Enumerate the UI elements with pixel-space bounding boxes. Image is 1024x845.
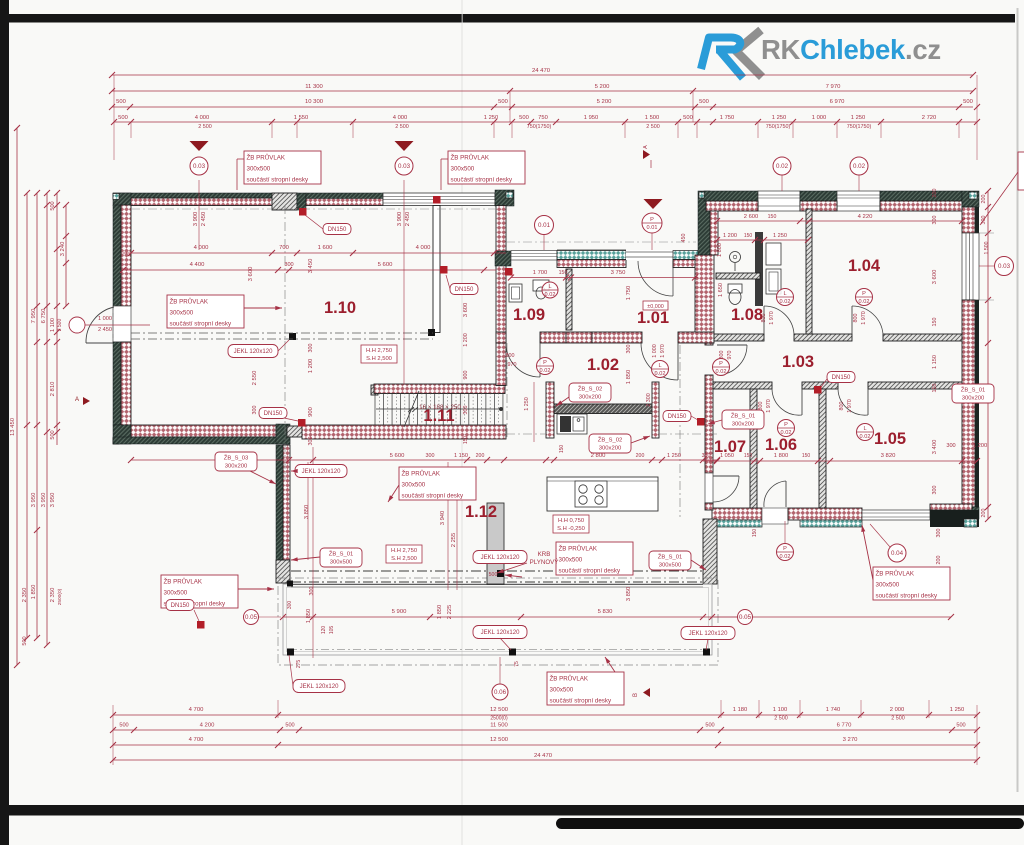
svg-text:ŽB_S_02: ŽB_S_02 xyxy=(598,436,623,444)
svg-text:ŽB PRŮVLAK: ŽB PRŮVLAK xyxy=(170,298,209,306)
svg-text:500: 500 xyxy=(498,99,508,105)
svg-text:2 500: 2 500 xyxy=(774,716,788,722)
svg-text:L: L xyxy=(548,284,551,290)
svg-text:±0,000: ±0,000 xyxy=(647,304,663,310)
svg-text:750(1750): 750(1750) xyxy=(847,124,872,130)
svg-text:ŽB PRŮVLAK: ŽB PRŮVLAK xyxy=(247,154,286,162)
svg-text:S.H 2,500: S.H 2,500 xyxy=(366,356,392,362)
svg-text:A: A xyxy=(75,397,79,403)
svg-text:4 000: 4 000 xyxy=(416,245,431,251)
svg-text:2 300: 2 300 xyxy=(646,393,652,407)
svg-text:L: L xyxy=(658,363,661,369)
svg-text:75: 75 xyxy=(514,661,520,667)
svg-text:3 600: 3 600 xyxy=(248,266,254,281)
svg-text:1 600: 1 600 xyxy=(318,245,333,251)
svg-text:700: 700 xyxy=(279,245,289,251)
svg-text:500: 500 xyxy=(22,636,28,645)
svg-text:0.02: 0.02 xyxy=(860,434,871,440)
svg-text:1 250: 1 250 xyxy=(524,397,530,411)
svg-text:300: 300 xyxy=(308,344,314,353)
svg-text:6 970: 6 970 xyxy=(830,99,845,105)
svg-text:3 600: 3 600 xyxy=(463,303,469,318)
svg-text:1 150: 1 150 xyxy=(932,355,938,369)
svg-text:JEKL 120x120: JEKL 120x120 xyxy=(234,349,273,355)
svg-text:2 450: 2 450 xyxy=(98,327,112,333)
svg-text:900: 900 xyxy=(463,371,469,380)
svg-text:11 300: 11 300 xyxy=(305,84,323,90)
svg-text:500: 500 xyxy=(963,99,973,105)
svg-text:0.03: 0.03 xyxy=(193,163,206,170)
svg-text:ŽB PRŮVLAK: ŽB PRŮVLAK xyxy=(164,578,203,586)
svg-text:1 500: 1 500 xyxy=(645,115,660,121)
svg-text:800: 800 xyxy=(839,402,845,411)
svg-text:5 830: 5 830 xyxy=(598,609,613,615)
svg-text:součástí stropní desky: součástí stropní desky xyxy=(559,568,621,575)
svg-text:ŽB PRŮVLAK: ŽB PRŮVLAK xyxy=(451,154,490,162)
svg-text:H.H 2,750: H.H 2,750 xyxy=(366,348,392,354)
svg-text:DN150: DN150 xyxy=(832,375,851,381)
svg-text:970: 970 xyxy=(727,351,733,360)
svg-text:150: 150 xyxy=(932,318,938,327)
svg-text:300: 300 xyxy=(463,406,469,415)
svg-text:300: 300 xyxy=(981,216,987,225)
svg-text:12 500: 12 500 xyxy=(490,707,509,713)
svg-text:ŽB PRŮVLAK: ŽB PRŮVLAK xyxy=(550,675,589,683)
svg-text:ŽB_S_01: ŽB_S_01 xyxy=(329,550,354,558)
svg-text:300x500: 300x500 xyxy=(876,582,900,589)
svg-text:300x500: 300x500 xyxy=(170,310,194,317)
svg-text:6 750: 6 750 xyxy=(41,308,47,323)
svg-text:300x200: 300x200 xyxy=(732,422,755,428)
svg-text:1 250: 1 250 xyxy=(773,233,787,239)
svg-text:1 970: 1 970 xyxy=(847,399,853,413)
svg-text:H.H 2,750: H.H 2,750 xyxy=(391,548,417,554)
svg-text:1.08: 1.08 xyxy=(731,306,763,324)
svg-text:6 770: 6 770 xyxy=(837,723,852,729)
svg-text:900: 900 xyxy=(308,407,314,417)
svg-text:800: 800 xyxy=(506,353,515,359)
svg-text:275: 275 xyxy=(296,660,302,669)
svg-text:1 250: 1 250 xyxy=(667,453,681,459)
svg-text:L: L xyxy=(783,291,786,297)
svg-text:0.01: 0.01 xyxy=(647,225,658,231)
svg-text:1 970: 1 970 xyxy=(769,311,775,325)
svg-text:5 900: 5 900 xyxy=(392,609,407,615)
svg-text:3 950: 3 950 xyxy=(50,492,56,507)
svg-text:200: 200 xyxy=(936,556,942,565)
svg-text:3 850: 3 850 xyxy=(626,587,632,602)
svg-text:0.04: 0.04 xyxy=(891,550,904,557)
svg-text:1 250: 1 250 xyxy=(851,115,866,121)
svg-text:300x500: 300x500 xyxy=(330,560,353,566)
svg-text:1 500: 1 500 xyxy=(984,241,990,254)
svg-text:4 000: 4 000 xyxy=(393,115,408,121)
svg-text:0.03: 0.03 xyxy=(998,263,1011,270)
svg-text:24 470: 24 470 xyxy=(534,753,553,759)
svg-text:0.06: 0.06 xyxy=(494,689,507,696)
svg-text:300: 300 xyxy=(932,216,938,225)
svg-text:300x200: 300x200 xyxy=(599,446,622,452)
svg-text:JEKL 120x120: JEKL 120x120 xyxy=(481,555,520,561)
svg-text:300x500: 300x500 xyxy=(402,482,426,489)
svg-text:S.H -0,250: S.H -0,250 xyxy=(557,526,585,532)
svg-text:P: P xyxy=(543,360,547,366)
svg-text:4 700: 4 700 xyxy=(189,737,204,743)
svg-text:2 450: 2 450 xyxy=(201,212,207,227)
svg-text:300x500: 300x500 xyxy=(550,687,574,694)
svg-text:1 650: 1 650 xyxy=(718,283,724,297)
svg-text:200: 200 xyxy=(932,189,938,198)
svg-text:300x500: 300x500 xyxy=(451,166,475,173)
svg-text:150: 150 xyxy=(559,270,568,276)
svg-text:P: P xyxy=(783,546,787,552)
svg-text:DN150: DN150 xyxy=(264,411,283,417)
svg-text:200: 200 xyxy=(981,509,987,518)
svg-text:2 600: 2 600 xyxy=(744,214,759,220)
svg-text:RKChlebek.cz: RKChlebek.cz xyxy=(761,34,941,65)
svg-text:JEKL 120x120: JEKL 120x120 xyxy=(689,631,728,637)
svg-text:150: 150 xyxy=(463,436,469,445)
svg-text:300: 300 xyxy=(626,345,632,354)
svg-text:750: 750 xyxy=(538,115,548,121)
svg-text:JEKL 120x120: JEKL 120x120 xyxy=(302,469,341,475)
svg-text:1.11: 1.11 xyxy=(423,407,454,425)
svg-text:1 200: 1 200 xyxy=(973,443,988,449)
svg-text:3 270: 3 270 xyxy=(843,737,858,743)
svg-text:ŽB_S_01: ŽB_S_01 xyxy=(731,412,756,420)
svg-text:0.01: 0.01 xyxy=(538,222,551,229)
svg-text:150: 150 xyxy=(802,453,811,459)
svg-text:P: P xyxy=(862,291,866,297)
svg-text:1.05: 1.05 xyxy=(874,430,906,448)
svg-text:1 970: 1 970 xyxy=(766,399,772,413)
svg-text:150: 150 xyxy=(932,384,938,393)
svg-text:1.12: 1.12 xyxy=(465,503,497,521)
svg-text:500: 500 xyxy=(119,723,128,729)
svg-text:0.02: 0.02 xyxy=(781,430,792,436)
svg-text:1.09: 1.09 xyxy=(513,306,545,324)
svg-text:DN150: DN150 xyxy=(328,227,347,233)
svg-text:ŽB_S_03: ŽB_S_03 xyxy=(224,454,249,462)
svg-text:200: 200 xyxy=(476,453,485,459)
svg-text:2 350: 2 350 xyxy=(22,587,28,602)
svg-text:300x500: 300x500 xyxy=(164,590,188,597)
svg-text:970: 970 xyxy=(508,362,517,368)
svg-text:2 500: 2 500 xyxy=(395,124,409,130)
svg-text:1 250: 1 250 xyxy=(772,115,787,121)
svg-text:2 500: 2 500 xyxy=(198,124,212,130)
svg-text:2 720: 2 720 xyxy=(922,115,937,121)
svg-text:2 255: 2 255 xyxy=(451,533,457,548)
svg-text:H.H 0,750: H.H 0,750 xyxy=(558,518,584,524)
svg-text:12 500: 12 500 xyxy=(490,737,509,743)
svg-text:500: 500 xyxy=(956,723,965,729)
svg-text:300x500: 300x500 xyxy=(659,563,682,569)
svg-text:součástí stropní desky: součástí stropní desky xyxy=(451,177,513,184)
svg-text:1 970: 1 970 xyxy=(861,311,867,325)
svg-text:1 250: 1 250 xyxy=(484,115,499,121)
svg-text:2 350: 2 350 xyxy=(50,587,56,602)
svg-text:2500(0): 2500(0) xyxy=(490,716,508,722)
svg-text:1.06: 1.06 xyxy=(765,436,797,454)
svg-text:3 900: 3 900 xyxy=(193,212,199,227)
svg-text:5 200: 5 200 xyxy=(595,84,610,90)
svg-text:800: 800 xyxy=(758,402,764,411)
svg-text:500: 500 xyxy=(285,723,294,729)
svg-text:5 600: 5 600 xyxy=(378,262,393,268)
svg-text:1.03: 1.03 xyxy=(782,353,814,371)
svg-text:ŽB PRŮVLAK: ŽB PRŮVLAK xyxy=(402,470,441,478)
svg-text:4 700: 4 700 xyxy=(189,707,204,713)
svg-text:750(1750): 750(1750) xyxy=(527,124,552,130)
svg-text:A: A xyxy=(643,145,649,149)
svg-text:B: B xyxy=(633,693,639,697)
svg-text:1 850: 1 850 xyxy=(306,609,312,624)
svg-text:1 850: 1 850 xyxy=(626,370,632,385)
svg-text:1 800: 1 800 xyxy=(717,243,723,257)
svg-text:4 400: 4 400 xyxy=(190,262,205,268)
svg-text:150: 150 xyxy=(559,445,565,454)
svg-text:1 250: 1 250 xyxy=(950,707,965,713)
svg-text:2 500: 2 500 xyxy=(646,124,660,130)
svg-text:500: 500 xyxy=(116,99,126,105)
svg-text:součástí stropní desky: součástí stropní desky xyxy=(247,177,309,184)
svg-text:1 180: 1 180 xyxy=(733,707,748,713)
svg-text:0.02: 0.02 xyxy=(545,292,556,298)
svg-text:P: P xyxy=(650,217,654,223)
svg-text:3 600: 3 600 xyxy=(932,269,938,284)
svg-text:1 000: 1 000 xyxy=(652,344,658,358)
svg-text:200: 200 xyxy=(636,453,645,459)
svg-text:300: 300 xyxy=(426,453,435,459)
svg-text:1.07: 1.07 xyxy=(714,438,746,456)
svg-text:1 750: 1 750 xyxy=(626,286,632,301)
svg-text:1 850: 1 850 xyxy=(31,584,37,599)
svg-text:0.03: 0.03 xyxy=(398,163,411,170)
svg-text:3 950: 3 950 xyxy=(31,492,37,507)
svg-text:KRB: KRB xyxy=(538,551,551,558)
svg-text:4 200: 4 200 xyxy=(200,723,215,729)
svg-text:300: 300 xyxy=(936,529,942,538)
svg-text:105: 105 xyxy=(329,626,335,635)
svg-text:1 740: 1 740 xyxy=(826,707,841,713)
svg-text:450: 450 xyxy=(681,234,687,243)
svg-text:24 470: 24 470 xyxy=(532,68,551,74)
svg-text:součástí stropní desky: součástí stropní desky xyxy=(170,321,232,328)
svg-text:2 000: 2 000 xyxy=(890,707,905,713)
svg-text:150: 150 xyxy=(744,233,753,239)
svg-text:1 550: 1 550 xyxy=(294,115,309,121)
svg-text:0.02: 0.02 xyxy=(853,163,866,170)
svg-text:1 100: 1 100 xyxy=(50,318,56,332)
svg-text:0.02: 0.02 xyxy=(540,368,551,374)
svg-text:300: 300 xyxy=(287,601,293,610)
svg-text:1 970: 1 970 xyxy=(660,344,666,358)
svg-text:L: L xyxy=(863,426,866,432)
svg-text:500: 500 xyxy=(50,201,56,210)
svg-text:500: 500 xyxy=(683,115,693,121)
svg-text:750(1750): 750(1750) xyxy=(766,124,791,130)
svg-text:300x200: 300x200 xyxy=(579,395,602,401)
svg-text:3 240: 3 240 xyxy=(60,241,66,256)
svg-text:DN150: DN150 xyxy=(171,603,190,609)
svg-text:300x500: 300x500 xyxy=(247,166,271,173)
svg-text:4 220: 4 220 xyxy=(858,214,873,220)
svg-text:4 000: 4 000 xyxy=(194,245,209,251)
svg-text:0.05: 0.05 xyxy=(739,614,752,621)
svg-text:ŽB_S_01: ŽB_S_01 xyxy=(658,553,683,561)
svg-text:1 000: 1 000 xyxy=(812,115,827,121)
svg-text:3 940: 3 940 xyxy=(440,511,446,526)
svg-text:0.02: 0.02 xyxy=(859,299,870,305)
svg-text:200: 200 xyxy=(981,195,987,204)
svg-text:500: 500 xyxy=(50,430,56,439)
svg-text:150: 150 xyxy=(768,214,777,220)
svg-text:0.02: 0.02 xyxy=(655,371,666,377)
svg-text:S.H 2,500: S.H 2,500 xyxy=(391,556,417,562)
svg-text:2500(0): 2500(0) xyxy=(57,588,63,605)
svg-text:500: 500 xyxy=(519,115,529,121)
svg-text:součástí stropní desky: součástí stropní desky xyxy=(402,493,464,500)
svg-text:3 750: 3 750 xyxy=(611,270,626,276)
svg-text:7 970: 7 970 xyxy=(826,84,841,90)
svg-text:součástí stropní desky: součástí stropní desky xyxy=(876,593,938,600)
svg-text:0.02: 0.02 xyxy=(716,369,727,375)
svg-text:300x500: 300x500 xyxy=(559,557,583,564)
svg-text:300x200: 300x200 xyxy=(225,464,248,470)
svg-text:1 000: 1 000 xyxy=(98,316,112,322)
svg-text:0.02: 0.02 xyxy=(776,163,789,170)
svg-text:500: 500 xyxy=(489,572,498,578)
svg-text:3 900: 3 900 xyxy=(397,212,403,227)
svg-text:2 550: 2 550 xyxy=(252,370,258,385)
svg-text:300: 300 xyxy=(932,486,938,495)
svg-text:1.02: 1.02 xyxy=(587,356,619,374)
svg-text:JEKL 120x120: JEKL 120x120 xyxy=(481,630,520,636)
svg-text:300: 300 xyxy=(702,453,711,459)
svg-text:10 300: 10 300 xyxy=(305,99,324,105)
svg-text:150: 150 xyxy=(752,529,758,538)
svg-text:1.10: 1.10 xyxy=(324,299,356,317)
svg-text:1 950: 1 950 xyxy=(584,115,599,121)
svg-text:2 810: 2 810 xyxy=(50,381,56,396)
svg-text:1 200: 1 200 xyxy=(463,333,469,347)
svg-text:1 100: 1 100 xyxy=(773,707,788,713)
svg-text:300: 300 xyxy=(308,437,314,446)
svg-text:500: 500 xyxy=(118,115,128,121)
svg-text:1.04: 1.04 xyxy=(848,257,881,275)
svg-text:1 750: 1 750 xyxy=(720,115,735,121)
svg-text:300x200: 300x200 xyxy=(962,396,985,402)
svg-text:120: 120 xyxy=(321,626,327,635)
svg-text:0.05: 0.05 xyxy=(245,614,258,621)
svg-text:P: P xyxy=(719,361,723,367)
svg-text:300: 300 xyxy=(946,443,955,449)
svg-text:2 800: 2 800 xyxy=(591,453,606,459)
svg-text:3 950: 3 950 xyxy=(41,492,47,507)
svg-text:DN150: DN150 xyxy=(455,287,474,293)
svg-text:5 600: 5 600 xyxy=(390,453,405,459)
svg-text:3 400: 3 400 xyxy=(932,439,938,454)
svg-text:ŽB PRŮVLAK: ŽB PRŮVLAK xyxy=(559,545,598,553)
svg-text:2 450: 2 450 xyxy=(405,212,411,227)
svg-text:300: 300 xyxy=(309,587,315,596)
svg-text:3 850: 3 850 xyxy=(304,505,310,520)
svg-text:300: 300 xyxy=(252,406,258,415)
svg-text:300: 300 xyxy=(284,262,293,268)
svg-text:500: 500 xyxy=(705,723,714,729)
svg-text:4 000: 4 000 xyxy=(195,115,210,121)
svg-text:1 150: 1 150 xyxy=(454,453,468,459)
svg-text:P: P xyxy=(784,422,788,428)
svg-text:13 450: 13 450 xyxy=(10,417,16,436)
svg-text:500: 500 xyxy=(699,99,709,105)
svg-text:DN150: DN150 xyxy=(668,414,687,420)
svg-text:1.01: 1.01 xyxy=(637,309,669,327)
svg-text:3 820: 3 820 xyxy=(881,453,896,459)
svg-text:ŽB_S_01: ŽB_S_01 xyxy=(961,386,986,394)
svg-text:0.02: 0.02 xyxy=(780,554,791,560)
svg-text:PLYNOVÝ: PLYNOVÝ xyxy=(530,559,559,566)
svg-text:7 950: 7 950 xyxy=(31,308,37,323)
svg-text:JEKL 120x120: JEKL 120x120 xyxy=(300,684,339,690)
svg-text:ŽB_S_02: ŽB_S_02 xyxy=(578,385,603,393)
svg-text:0.02: 0.02 xyxy=(780,299,791,305)
svg-text:součástí stropní desky: součástí stropní desky xyxy=(550,698,612,705)
svg-text:1 200: 1 200 xyxy=(723,233,737,239)
svg-text:800: 800 xyxy=(853,314,859,323)
svg-text:3 450: 3 450 xyxy=(308,258,314,273)
svg-text:5 200: 5 200 xyxy=(597,99,612,105)
svg-text:1 700: 1 700 xyxy=(533,270,548,276)
svg-text:1 200: 1 200 xyxy=(308,359,314,374)
svg-text:ŽB PRŮVLAK: ŽB PRŮVLAK xyxy=(876,570,915,578)
svg-text:2 500: 2 500 xyxy=(891,716,905,722)
svg-text:11 500: 11 500 xyxy=(490,723,508,729)
svg-text:2 500: 2 500 xyxy=(57,319,63,332)
